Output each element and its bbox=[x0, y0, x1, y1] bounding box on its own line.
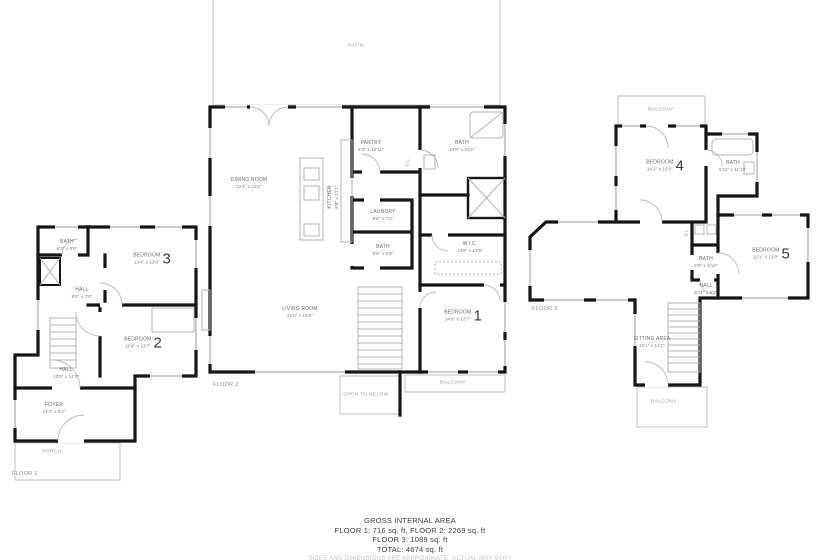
f2-bedroom1-label: BEDROOM 14'6" x 13'7" 1 bbox=[444, 309, 482, 324]
floor3-bottom-balcony-outline bbox=[637, 387, 707, 427]
floor1-stairs bbox=[50, 318, 76, 368]
footer-title: GROSS INTERNAL AREA bbox=[0, 516, 820, 526]
f1-bedroom3-label: BEDROOM 13'4" x 13'0" 3 bbox=[133, 252, 171, 267]
room-dims: 9'8" x 5'8" bbox=[373, 250, 394, 256]
floorplan-drawing-svg bbox=[0, 0, 820, 560]
f1-bath-label: BATH 6'3" x 8'5" bbox=[57, 239, 78, 251]
f3-closet-label: CL. bbox=[685, 228, 690, 237]
footer-floor1-2-area: FLOOR 1: 716 sq. ft, FLOOR 2: 2269 sq. f… bbox=[0, 526, 820, 536]
f1-hall-label: HALL 13'9" x 14'2" bbox=[53, 367, 79, 379]
room-dims: 13'9" x 14'2" bbox=[53, 373, 79, 379]
f2-wic-label: W.I.C. 13'8" x 13'5" bbox=[457, 241, 483, 253]
room-name: FOYER bbox=[42, 402, 65, 409]
dryer bbox=[707, 225, 716, 234]
room-name: BEDROOM bbox=[646, 160, 673, 167]
f2-pantry-label: PANTRY 5'3" x 10'11" bbox=[358, 140, 384, 152]
room-dims: 14'2" x 16'0" bbox=[646, 166, 673, 172]
floor1-closet bbox=[152, 308, 194, 332]
room-name: BEDROOM bbox=[752, 248, 779, 255]
room-dims: 12'4" x 16'1" bbox=[231, 183, 268, 189]
room-number: 3 bbox=[162, 252, 170, 267]
floor2-stairs bbox=[358, 287, 402, 369]
f3-sitting-label: SITTING AREA 15'1" x 14'1" bbox=[634, 336, 671, 348]
room-dims: 8'5" x 7'0" bbox=[72, 293, 93, 299]
room-name: LIVING ROOM bbox=[282, 306, 318, 313]
floorplan-page: BATH 6'3" x 8'5" BEDROOM 13'4" x 13'0" 3… bbox=[0, 0, 820, 560]
room-number: 2 bbox=[153, 336, 161, 351]
room-name: BEDROOM bbox=[124, 337, 151, 344]
f2-balcony-label: BALCONY bbox=[440, 381, 466, 386]
f3-balcony-bottom-label: BALCONY bbox=[651, 400, 677, 405]
f2-laundry-label: LAUNDRY 9'6" x 7'2" bbox=[370, 209, 395, 221]
room-name: KITCHEN bbox=[327, 185, 334, 208]
floor2-elevator-x bbox=[468, 178, 505, 218]
room-dims: 14'6" x 13'7" bbox=[444, 316, 471, 322]
f2-bath-small-label: BATH 9'8" x 5'8" bbox=[373, 244, 394, 256]
room-dims: 5'3" x 10'11" bbox=[358, 146, 384, 152]
room-dims: 13'8" x 13'5" bbox=[457, 247, 483, 253]
floor2-toilet bbox=[424, 155, 435, 169]
room-dims: 6'3" x 8'5" bbox=[57, 245, 78, 251]
f2-open-below-label: OPEN TO BELOW bbox=[343, 393, 388, 398]
room-name: BEDROOM bbox=[133, 253, 160, 260]
room-dims: 15'1" x 14'1" bbox=[634, 342, 671, 348]
floor3-stairs bbox=[668, 303, 700, 372]
f1-hall-upper-label: HALL 8'5" x 7'0" bbox=[72, 287, 93, 299]
room-name: SITTING AREA bbox=[634, 336, 671, 343]
room-name: BEDROOM bbox=[444, 310, 471, 317]
room-dims: 12'4" x 13'7" bbox=[124, 343, 151, 349]
fixtures-group bbox=[40, 112, 754, 372]
room-number: 1 bbox=[473, 309, 481, 324]
f3-hall-label: HALL 8'11" x 8'2" bbox=[694, 283, 717, 295]
room-name: DINING ROOM bbox=[231, 177, 268, 184]
wic-shelf bbox=[435, 262, 501, 274]
room-dims: 13'4" x 9'2" bbox=[42, 408, 65, 414]
footer-area-summary: GROSS INTERNAL AREA FLOOR 1: 716 sq. ft,… bbox=[0, 516, 820, 560]
room-dims: 5'11" x 11'10" bbox=[719, 166, 747, 172]
f2-kitchen-label: KITCHEN 8'8" x 21'1" bbox=[327, 185, 339, 208]
floor1-shaft-x bbox=[40, 258, 60, 285]
room-dims: 8'8" x 21'1" bbox=[333, 185, 339, 208]
f1-porch-label: PORCH bbox=[42, 450, 61, 455]
f3-bath-label: BATH 8'0" x 5'10" bbox=[694, 256, 717, 268]
room-dims: 13'8" x 16'1" bbox=[449, 146, 475, 152]
kitchen-island bbox=[300, 158, 323, 240]
room-dims: 13'4" x 13'0" bbox=[133, 259, 160, 265]
floor3-tag: FLOOR 3 bbox=[532, 306, 558, 312]
f2-dining-label: DINING ROOM 12'4" x 16'1" bbox=[231, 177, 268, 189]
f2-closet-label: CL. bbox=[406, 158, 411, 167]
floor3-tub bbox=[712, 139, 753, 155]
f3-bedroom5-label: BEDROOM 12'1" x 13'0" 5 bbox=[752, 247, 790, 262]
f2-living-label: LIVING ROOM 21'8" x 19'9" bbox=[282, 306, 318, 318]
floor2-tag: FLOOR 2 bbox=[213, 382, 239, 388]
room-dims: 12'1" x 13'0" bbox=[752, 254, 779, 260]
room-dims: 9'6" x 7'2" bbox=[370, 215, 395, 221]
patio-outline bbox=[213, 0, 500, 105]
f1-bedroom2-label: BEDROOM 12'4" x 13'7" 2 bbox=[124, 336, 162, 351]
room-name: LAUNDRY bbox=[370, 209, 395, 216]
walls-group bbox=[15, 107, 808, 441]
f2-patio-label: PATIO bbox=[348, 44, 364, 49]
footer-floor3-area: FLOOR 3: 1089 sq. ft bbox=[0, 535, 820, 545]
door-arcs-group bbox=[52, 107, 739, 441]
f1-foyer-label: FOYER 13'4" x 9'2" bbox=[42, 402, 65, 414]
room-number: 5 bbox=[781, 247, 789, 262]
room-number: 4 bbox=[675, 159, 683, 174]
washer bbox=[695, 225, 704, 234]
f3-bath-upper-label: BATH 5'11" x 11'10" bbox=[719, 160, 747, 172]
f3-balcony-top-label: BALCONY bbox=[648, 108, 674, 113]
room-dims: 21'8" x 19'9" bbox=[282, 312, 318, 318]
room-dims: 8'0" x 5'10" bbox=[694, 262, 717, 268]
room-dims: 8'11" x 8'2" bbox=[694, 289, 717, 295]
outdoor-areas-group bbox=[15, 0, 707, 480]
f2-bath-top-label: BATH 13'8" x 16'1" bbox=[449, 140, 475, 152]
floor1-tag: FLOOR 1 bbox=[12, 471, 38, 477]
footer-disclaimer: SIZES AND DIMENSIONS ARE APPROXIMATE, AC… bbox=[0, 555, 820, 560]
footer-total-area: TOTAL: 4674 sq. ft bbox=[0, 545, 820, 555]
room-name: PANTRY bbox=[358, 140, 384, 147]
f3-bedroom4-label: BEDROOM 14'2" x 16'0" 4 bbox=[646, 159, 684, 174]
